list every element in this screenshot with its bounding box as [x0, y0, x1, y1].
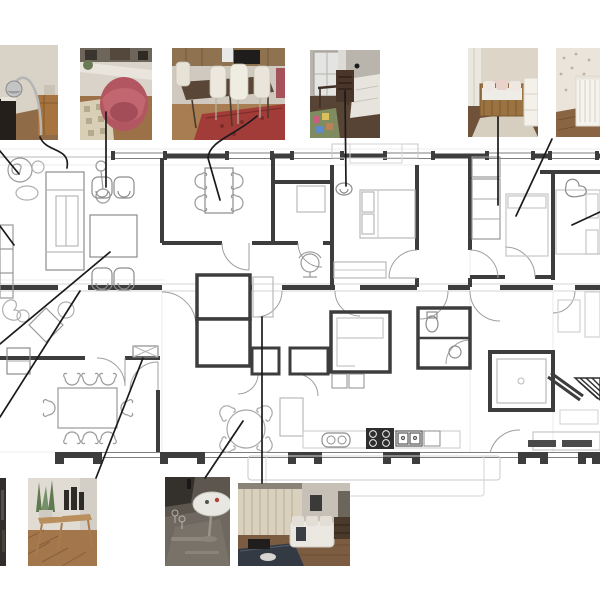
- interior-walls: [0, 157, 600, 452]
- rotated-square-table: [29, 308, 63, 342]
- counter-module: [424, 431, 440, 446]
- bed-3: [556, 190, 600, 254]
- photo-kids-daybed: [468, 48, 538, 137]
- ottoman: [16, 186, 38, 200]
- photo-red-armchair: [80, 48, 152, 140]
- photo-left-edge-fragment: [0, 478, 6, 566]
- wall-feet: [55, 458, 600, 464]
- pantry: [331, 312, 390, 372]
- plant-sketch: [3, 300, 21, 320]
- photo-arc-lamp-corner: [0, 45, 58, 140]
- basin: [449, 346, 461, 358]
- bench-sketch: [560, 410, 598, 424]
- floor-plan-figure: { "figure": { "kind": "apartment-floor-p…: [0, 0, 600, 600]
- vanity-oval: [336, 183, 352, 195]
- vase-sketch: [566, 179, 587, 197]
- breakfast-round-table: [216, 402, 276, 456]
- right-sketch-1: [585, 292, 600, 337]
- photo-dining-table: [172, 48, 285, 140]
- top-exterior-wall: [0, 144, 600, 163]
- red-tub-chair: [100, 77, 148, 131]
- dining-nook: [195, 168, 325, 213]
- photo-nursery-crib: [556, 48, 600, 137]
- photo-oval-table: [165, 477, 230, 566]
- lower-living: [3, 300, 158, 374]
- dining-room: [43, 373, 132, 443]
- living-room: [0, 158, 137, 298]
- bedroom-3: [556, 179, 600, 337]
- bathroom: [418, 308, 470, 368]
- dining-table: [58, 388, 117, 428]
- picture-frame: [310, 495, 322, 511]
- toilet: [426, 312, 438, 332]
- bed-2: [506, 194, 548, 256]
- bottom-balcony-outline: [248, 456, 500, 480]
- white-crib: [576, 76, 600, 126]
- fireplace: [0, 99, 16, 140]
- plant: [83, 60, 93, 70]
- dark-seat-1: [528, 440, 556, 447]
- right-sketch-2: [558, 300, 580, 332]
- door-arcs: [97, 243, 575, 453]
- bedroom-2: [472, 157, 548, 256]
- tv: [234, 50, 260, 64]
- coffee-table: [90, 215, 137, 257]
- side-table: [32, 161, 44, 173]
- bed: [350, 74, 380, 118]
- shower-square: [497, 359, 546, 403]
- double-sink: [396, 431, 422, 446]
- shelving-unit: [46, 172, 84, 270]
- coffee-table-dark: [248, 539, 270, 549]
- media-cabinet: [334, 517, 350, 539]
- dark-seat-2: [562, 440, 592, 447]
- corridor-spine: [0, 284, 600, 291]
- photo-living-room: [238, 483, 350, 566]
- wardrobe: [472, 179, 500, 239]
- desk-chair: [299, 252, 321, 277]
- white-cabinet: [524, 78, 538, 126]
- kitchen: [280, 312, 460, 449]
- white-sofa: [290, 516, 334, 547]
- red-chair-edge: [276, 68, 285, 98]
- photo-bedroom-desk: [310, 50, 380, 138]
- hall-cabinet: [253, 277, 273, 317]
- stove: [366, 428, 394, 449]
- kitchen-island: [280, 398, 303, 436]
- dining-nook-table: [205, 168, 233, 213]
- shower-room: [490, 352, 600, 450]
- daybed: [480, 80, 524, 116]
- bedroom-1: [334, 183, 415, 278]
- closet-box: [297, 186, 325, 212]
- armchair-pair-top: [92, 177, 134, 198]
- photo-console-table: [28, 478, 97, 566]
- hatched-triangle: [575, 378, 600, 400]
- swirl-lounge-chair: [8, 158, 32, 182]
